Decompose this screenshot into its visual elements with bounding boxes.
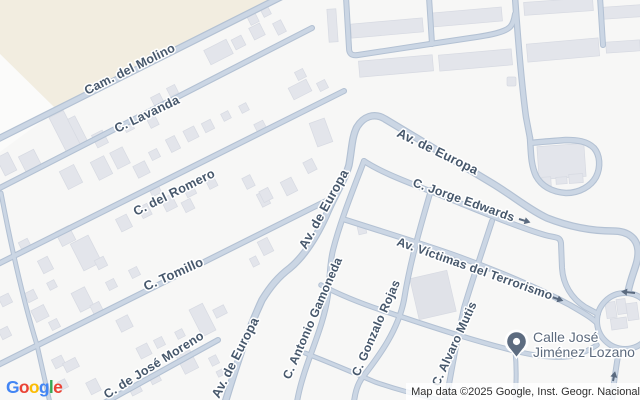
svg-text:Google: Google bbox=[6, 377, 63, 397]
svg-text:Calle José: Calle José bbox=[533, 329, 599, 345]
svg-text:Map data ©2025 Google, Inst. G: Map data ©2025 Google, Inst. Geogr. Naci… bbox=[411, 386, 640, 398]
svg-text:Jiménez Lozano: Jiménez Lozano bbox=[533, 344, 635, 360]
